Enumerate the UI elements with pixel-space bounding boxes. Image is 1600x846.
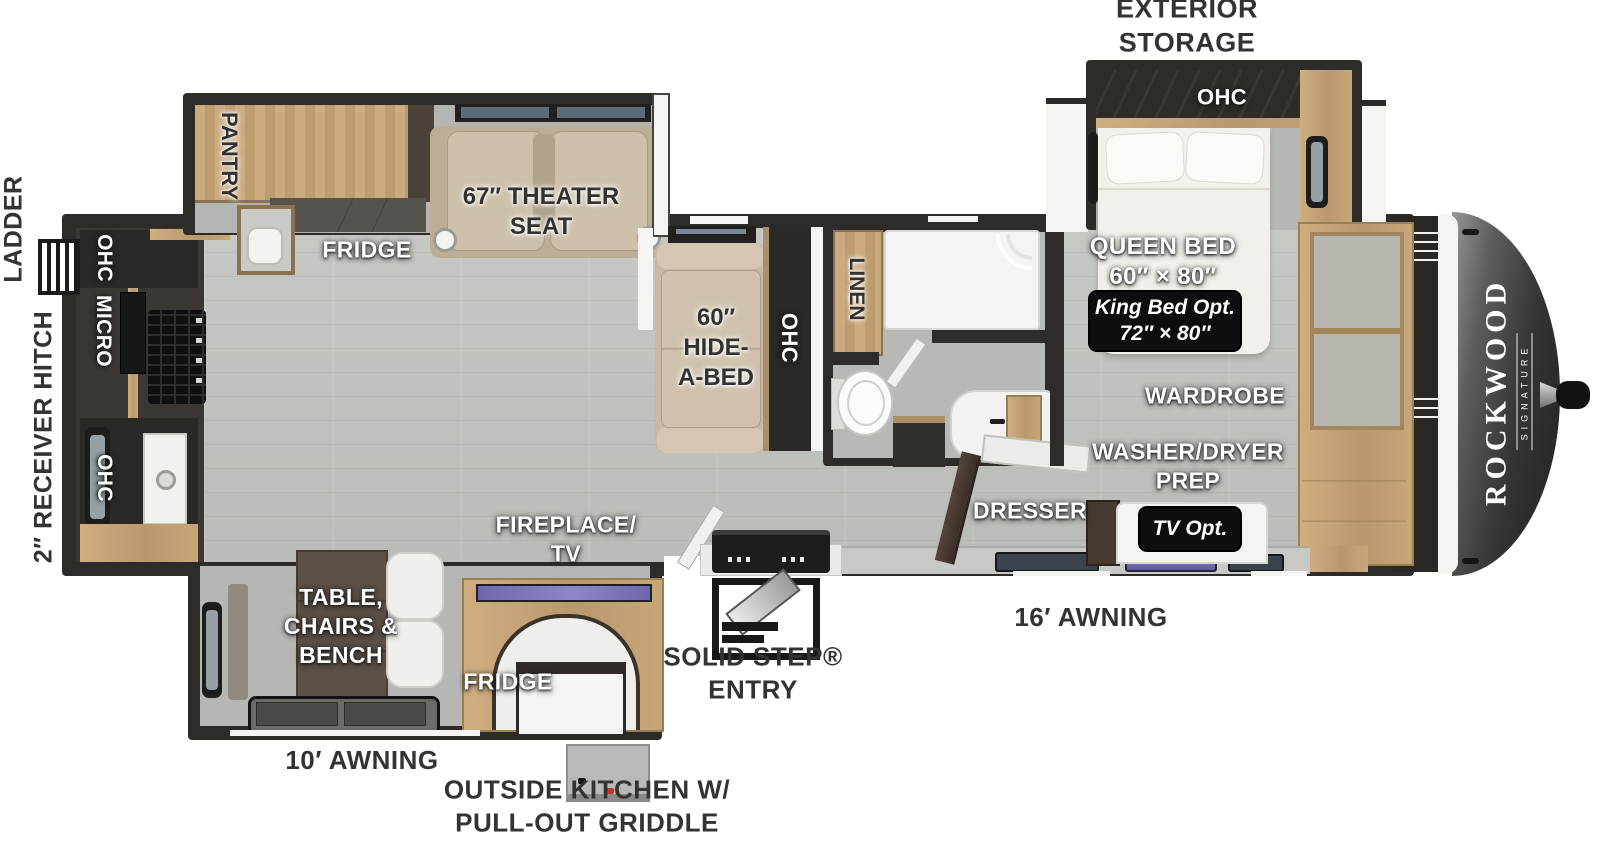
kitchen-corner-cabinet [80,524,198,562]
sink-drain [156,470,176,490]
entry-steps-bar-1 [722,622,778,631]
dinette-window-glass [206,610,218,690]
label-exterior-storage: EXTERIOR STORAGE [1116,0,1258,60]
floor-mat-panel-1 [256,702,338,726]
griddle-knobs-2 [782,557,808,562]
ledge-panel-1 [995,552,1099,572]
bed-blanket-seam [1098,188,1270,190]
label-solid-step-entry: SOLID STEP® ENTRY [663,641,842,706]
stove-knobs [196,318,202,396]
label-ladder: LADDER [0,175,29,282]
wardrobe-glass-lower [1310,330,1404,430]
sofa-armrest-top [657,243,763,269]
hitch-pin-knob [1556,381,1590,409]
label-washer-dryer: WASHER/DRYER PREP [1092,437,1284,495]
label-kitchen-ohc-bottom: OHC [92,454,116,502]
toilet-seat [847,380,885,426]
awning-strip-2 [1251,571,1307,576]
brand-name: ROCKWOOD [1480,278,1514,506]
bedroom-window-left [1088,132,1098,204]
bath-cabinet [893,416,945,467]
bed-pillow-right [1185,131,1266,185]
label-kitchen-ohc-top: OHC [92,234,116,282]
label-theater-seat: 67″ THEATER SEAT [463,182,619,242]
tv-screen [676,229,746,234]
top-wall-window-1 [690,216,748,224]
bath-divider-wall-right [932,330,1055,343]
front-wall-trim [1438,214,1458,574]
bedroom-window-right-glass [1311,142,1323,202]
theater-cupholder-left [433,228,457,252]
label-awning-10: 10′ AWNING [285,744,438,777]
label-receiver-hitch: 2″ RECEIVER HITCH [30,311,59,563]
griddle-cooktop [712,530,830,573]
bath-divider-wall-left [823,352,879,365]
microwave [120,292,146,374]
label-dinette: TABLE, CHAIRS & BENCH [284,583,398,669]
brand-logo: ROCKWOOD SIGNATURE [1480,278,1533,506]
bed-pillow-left [1105,131,1186,185]
label-fridge-main: FRIDGE [322,236,411,265]
cap-marker-light-top [1462,229,1479,235]
awning-strip-dinette [230,730,480,736]
badge-king-bed-opt: King Bed Opt. 72″ × 80″ [1088,290,1242,352]
floor-plan: ROCKWOOD SIGNATURE [0,0,1600,846]
floor-mat-panel-2 [344,702,426,726]
label-queen-bed: QUEEN BED 60″ × 80″ [1090,232,1236,292]
label-hide-a-bed: 60″ HIDE- A-BED [678,303,754,393]
label-dresser: DRESSER [973,497,1087,526]
sofa-armrest-bottom [657,427,763,453]
label-awning-16: 16′ AWNING [1014,601,1167,634]
label-outside-kitchen: OUTSIDE KITCHEN W/ PULL-OUT GRIDDLE [444,774,730,839]
living-slide-endwall [652,93,670,237]
label-kitchen-micro: MICRO [91,295,115,367]
label-pantry: PANTRY [216,112,242,200]
dinette-bench [228,584,248,700]
theater-seat-window-glass-1 [461,107,549,118]
vanity-faucet [990,419,1005,424]
badge-tv-opt: TV Opt. [1138,506,1242,552]
awning-strip-1 [1013,571,1110,576]
bathroom-right-wall [1050,222,1064,466]
bedroom-slide-flank-left [1046,98,1088,232]
wardrobe-glass-upper [1310,232,1404,332]
label-fireplace-tv: FIREPLACE/ TV [496,510,637,568]
label-sofa-ohc: OHC [776,313,802,363]
pantry-pullout-bowl [247,227,283,265]
sofa-ohc-endwall [811,227,823,451]
label-wardrobe: WARDROBE [1145,382,1285,411]
ladder-icon [38,239,80,295]
griddle-knobs [728,557,754,562]
wardrobe-drawers [1302,432,1406,558]
theater-seat-window-glass-2 [557,107,645,118]
sofa-side-wall [638,228,653,330]
badge-tv-text: TV Opt. [1153,516,1228,542]
label-bedroom-ohc: OHC [1197,83,1247,111]
wardrobe-base-trim [1308,546,1368,572]
dresser-side-cabinet [1086,500,1120,566]
cap-marker-light-bottom [1462,558,1479,564]
label-fridge-outside: FRIDGE [463,668,552,697]
badge-king-bed-text: King Bed Opt. 72″ × 80″ [1095,295,1235,348]
fireplace-tv-screen [476,584,652,602]
brand-series: SIGNATURE [1517,334,1533,451]
label-linen: LINEN [844,258,868,321]
